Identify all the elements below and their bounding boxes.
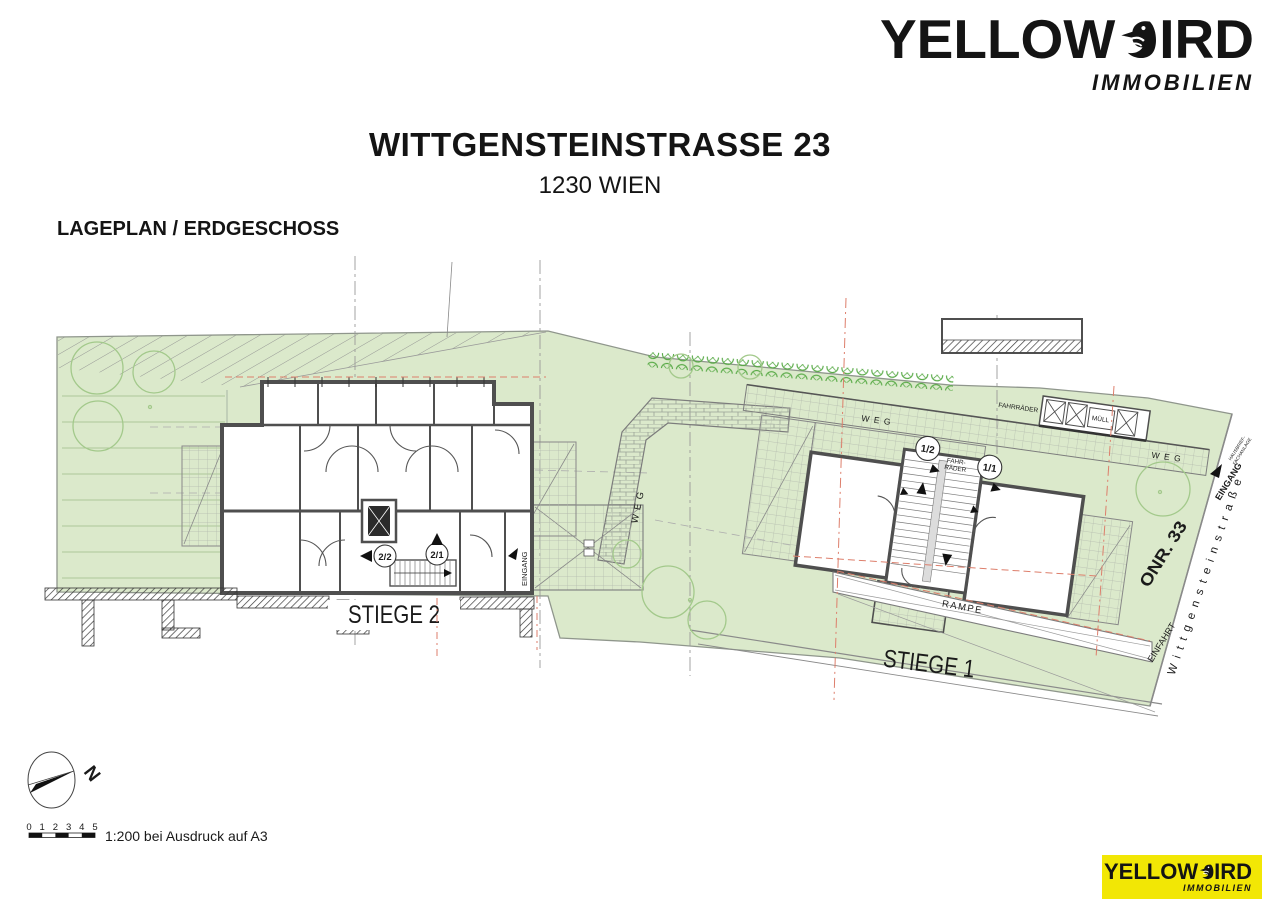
unit-22-label: 2/2 — [378, 552, 391, 563]
brand-text-right: IRD — [1214, 861, 1252, 883]
unit-12-label: 1/2 — [920, 444, 936, 457]
scale-tick-2: 2 — [53, 822, 58, 833]
site-plan: FAHRRÄDER MÜLL — [0, 0, 1280, 905]
scale-tick-4: 4 — [79, 822, 84, 833]
brand-text-left: YELLOW — [1104, 861, 1198, 883]
scale-tick-0: 0 — [26, 822, 31, 833]
unit-12-footprint — [795, 452, 902, 578]
footer-brand-subtitle: IMMOBILIEN — [1183, 883, 1252, 893]
scale-bar: 0 1 2 3 4 5 1:200 bei Ausdruck auf A3 — [26, 822, 268, 844]
retaining-walls — [45, 588, 534, 646]
scale-note: 1:200 bei Ausdruck auf A3 — [105, 828, 268, 844]
scale-tick-5: 5 — [92, 822, 97, 833]
floorplan-page: { "header": { "brand": { "left": "YELLOW… — [0, 0, 1280, 905]
scale-tick-3: 3 — [66, 822, 71, 833]
neighbour-building — [942, 319, 1082, 353]
bird-icon — [1197, 863, 1215, 881]
hausbrief-note: HAUSBRIEF- FACHANLAGE — [1227, 434, 1253, 466]
compass: N — [28, 752, 104, 808]
unit-21-label: 2/1 — [430, 550, 444, 561]
footer-logo: YELLOW IRD IMMOBILIEN — [1102, 855, 1262, 899]
eingang-label-stiege2: EINGANG — [520, 551, 529, 586]
elevator — [362, 500, 396, 542]
north-label: N — [79, 762, 104, 786]
unit-11-footprint — [964, 482, 1084, 615]
stiege2-label: STIEGE 2 — [348, 601, 440, 629]
stiege2-stairs — [390, 560, 456, 586]
unit-11-label: 1/1 — [982, 462, 998, 475]
scale-tick-1: 1 — [40, 822, 45, 833]
